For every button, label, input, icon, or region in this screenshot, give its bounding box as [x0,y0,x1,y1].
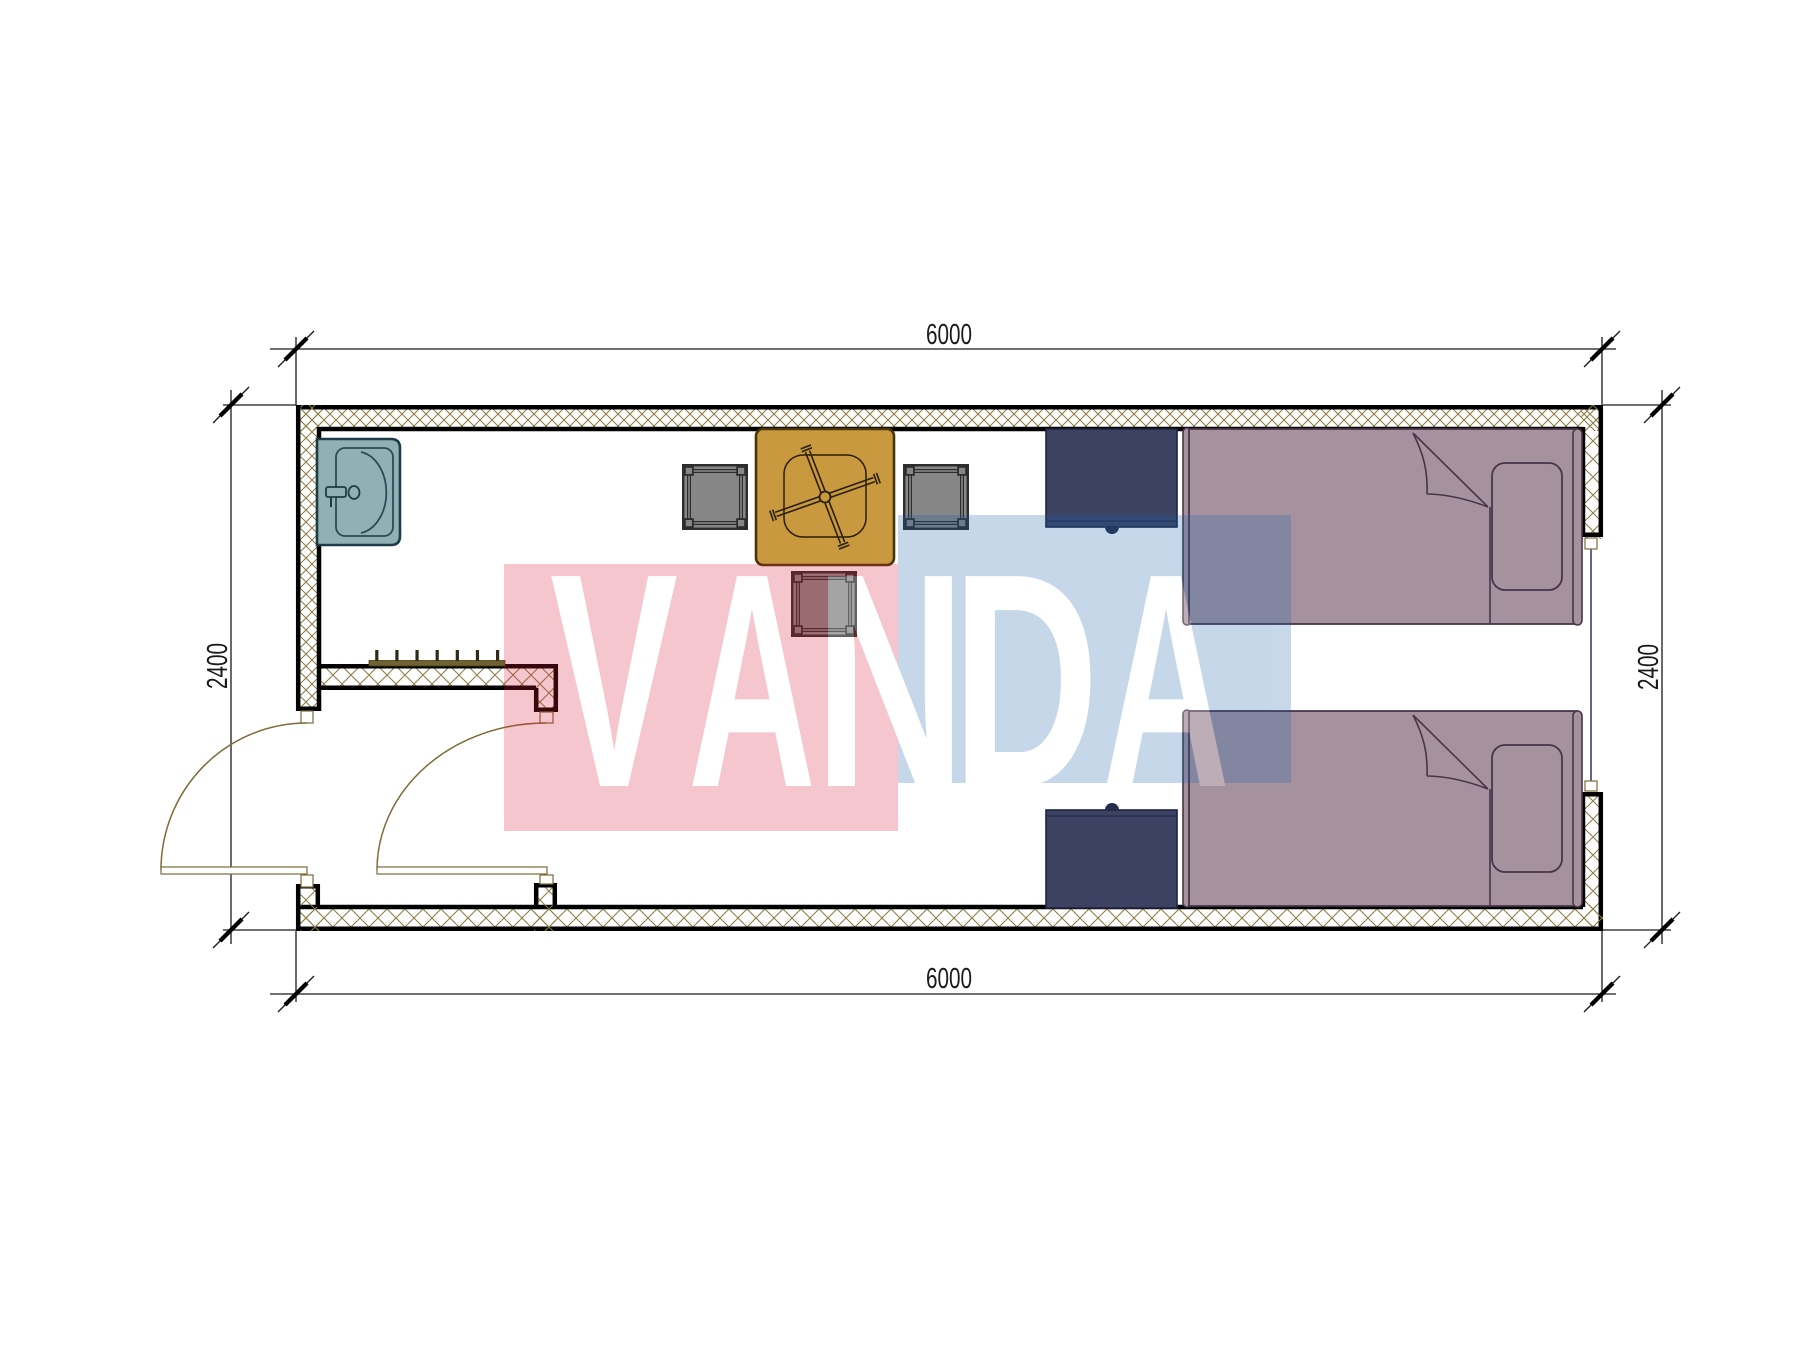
svg-text:2400: 2400 [202,643,234,689]
svg-text:6000: 6000 [926,963,972,995]
svg-text:A: A [688,510,816,851]
svg-text:D: D [952,510,1099,851]
svg-text:2400: 2400 [1633,644,1665,690]
svg-text:A: A [1102,510,1230,851]
svg-text:6000: 6000 [926,319,972,351]
svg-text:V: V [550,510,679,851]
svg-text:N: N [814,510,966,851]
